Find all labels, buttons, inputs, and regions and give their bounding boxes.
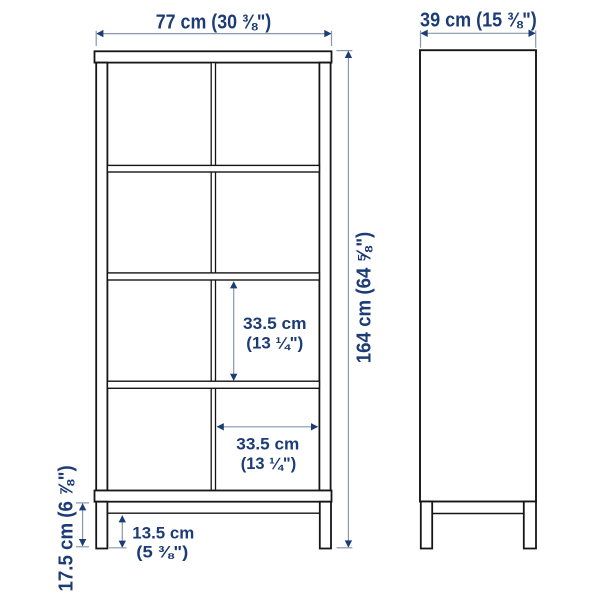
svg-text:77 cm (30 ⅜"): 77 cm (30 ⅜") (156, 11, 272, 33)
svg-text:164 cm (64 ⅝"): 164 cm (64 ⅝") (354, 232, 376, 364)
svg-text:13.5 cm: 13.5 cm (132, 524, 194, 543)
svg-text:33.5 cm: 33.5 cm (243, 314, 307, 333)
svg-text:(5 ⅜"): (5 ⅜") (136, 542, 188, 561)
svg-text:17.5 cm (6 ⅞"): 17.5 cm (6 ⅞") (56, 465, 78, 591)
svg-text:33.5 cm: 33.5 cm (236, 435, 299, 454)
svg-text:39 cm (15 ⅜"): 39 cm (15 ⅜") (420, 10, 537, 32)
svg-text:(13 ¼"): (13 ¼") (241, 454, 297, 473)
svg-text:(13 ¼"): (13 ¼") (246, 333, 303, 352)
